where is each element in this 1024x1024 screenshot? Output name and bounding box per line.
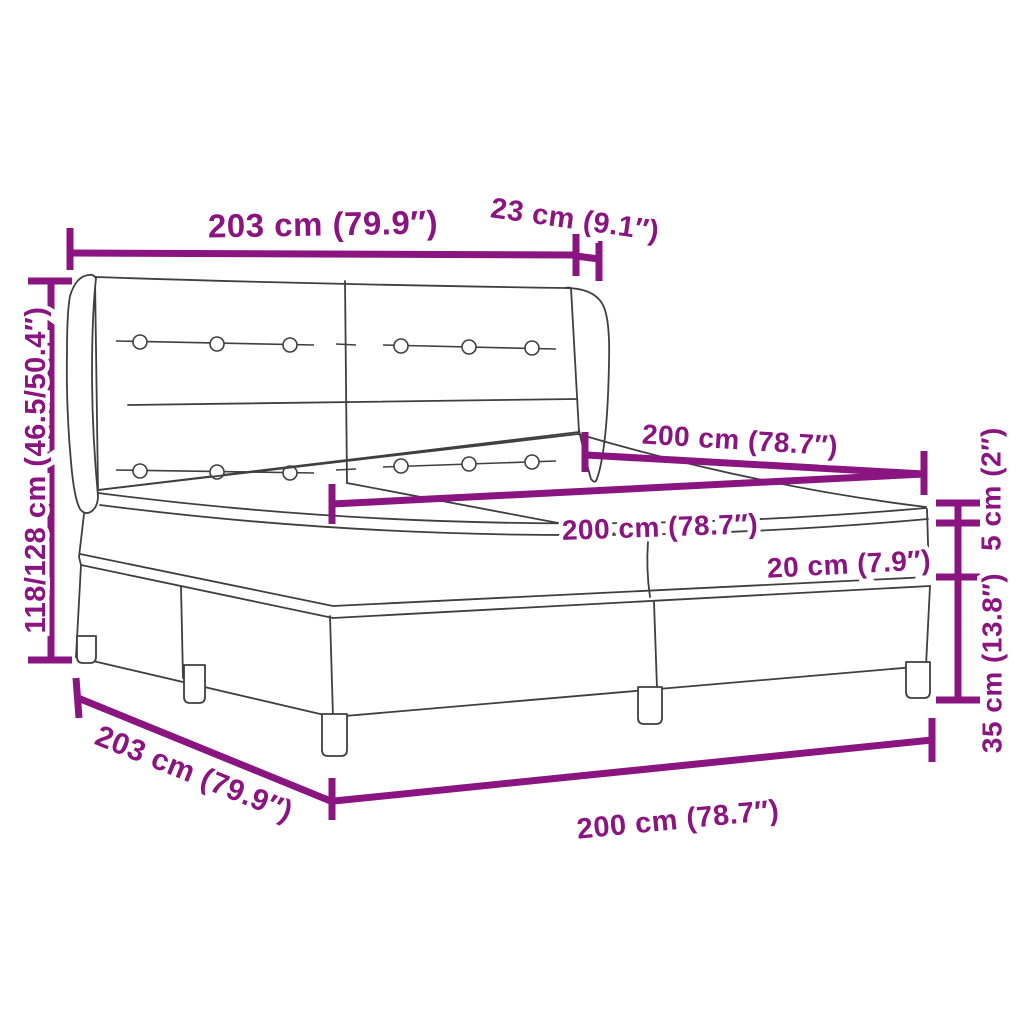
tuft-button (394, 339, 408, 353)
headboard-center-seam (345, 281, 347, 483)
box-front-corner-edge (330, 616, 333, 717)
tuft-button (462, 340, 476, 354)
label-bed-width: 200 cm (78.7″) (575, 794, 780, 845)
bed-leg (638, 687, 662, 724)
dim-bed-width (334, 718, 932, 801)
tuft-button (133, 464, 147, 478)
mattress-front-split-seam (647, 541, 650, 597)
headboard-left-wing (67, 275, 98, 513)
box-right-corner (926, 586, 930, 666)
bed-diagram-canvas: 203 cm (79.9″) 23 cm (9.1″) 118/128 cm (… (0, 0, 1024, 1024)
label-topper-height: 5 cm (2″) (976, 427, 1007, 551)
topper-bottom-edge (100, 505, 928, 535)
label-bed-length: 200 cm (78.7″) (641, 419, 839, 462)
tuft-button (133, 335, 147, 349)
tuft-button (525, 341, 539, 355)
stitch-line (336, 344, 356, 345)
box-front-split-seam (654, 602, 657, 688)
headboard-tufting (116, 335, 556, 480)
box-side-seam (181, 586, 183, 678)
headboard-face-outline (95, 277, 579, 490)
bed-line-art (67, 275, 930, 756)
tuft-button (525, 455, 539, 469)
headboard (67, 275, 609, 513)
bed-leg (906, 662, 930, 698)
dimension-lines (28, 228, 980, 820)
tuft-button (462, 457, 476, 471)
legs (77, 636, 930, 756)
label-headboard-width: 203 cm (79.9″) (208, 203, 439, 244)
bed-leg (184, 665, 205, 703)
product-dimension-diagram: 203 cm (79.9″) 23 cm (9.1″) 118/128 cm (… (0, 0, 1024, 1024)
bed-leg (322, 714, 347, 756)
bed-leg (77, 636, 96, 663)
label-base-height: 35 cm (13.8″) (977, 573, 1008, 753)
tuft-button (394, 459, 408, 473)
label-mattress-width: 200 cm (78.7″) (561, 508, 758, 546)
dim-height-stack (936, 503, 980, 700)
tuft-button (283, 338, 297, 352)
headboard-mid-seam (128, 399, 576, 405)
tuft-button (210, 337, 224, 351)
label-headboard-height: 118/128 cm (46.5/50.4″) (20, 307, 52, 634)
stitch-line (336, 469, 356, 470)
